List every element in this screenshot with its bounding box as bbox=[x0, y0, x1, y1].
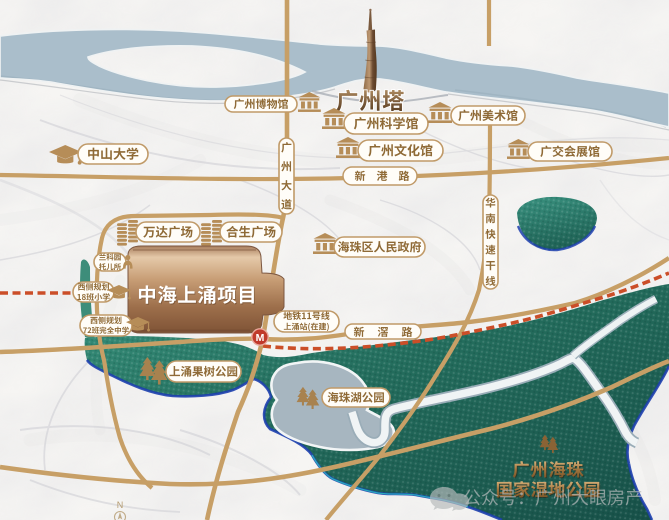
svg-text:N: N bbox=[117, 500, 124, 510]
svg-text:M: M bbox=[256, 332, 265, 344]
